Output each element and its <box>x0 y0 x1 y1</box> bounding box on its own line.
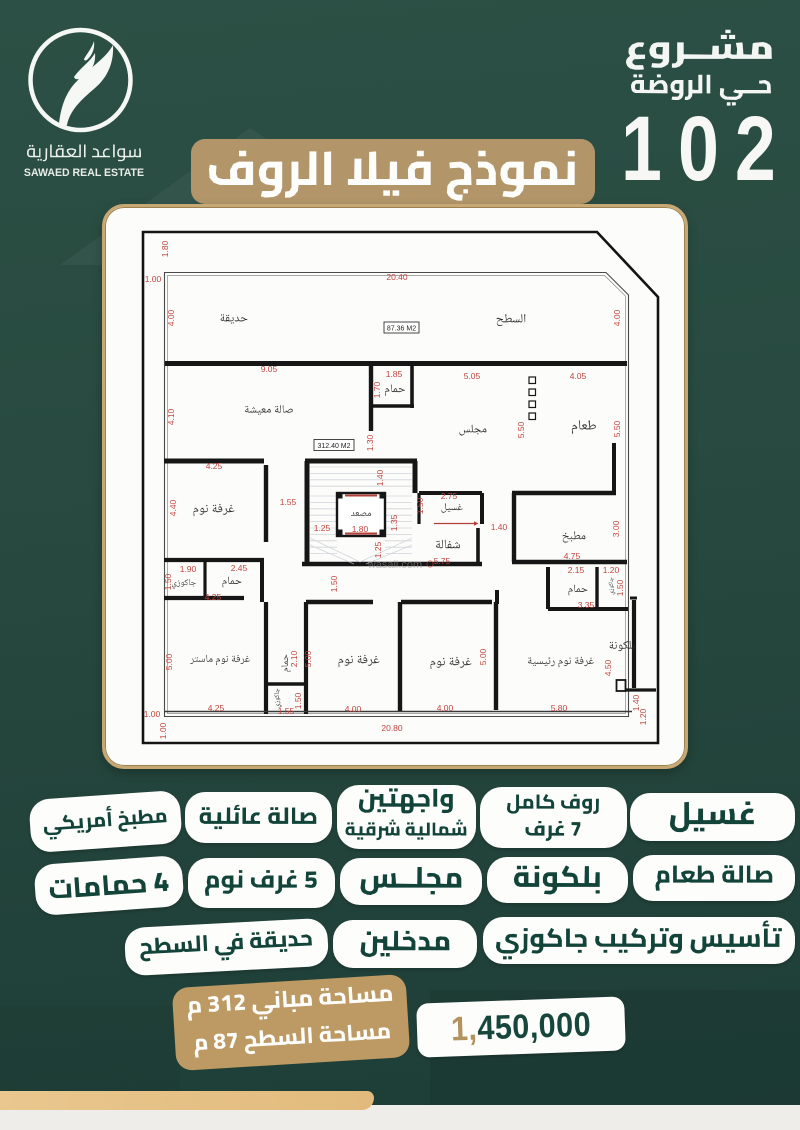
svg-text:4.00: 4.00 <box>166 309 176 326</box>
svg-text:5.50: 5.50 <box>612 420 622 437</box>
svg-text:1.70: 1.70 <box>372 381 382 398</box>
svg-text:4.25: 4.25 <box>208 703 225 713</box>
svg-text:1.35: 1.35 <box>389 514 399 531</box>
svg-text:4.10: 4.10 <box>166 408 176 425</box>
svg-text:1.50: 1.50 <box>615 579 625 596</box>
svg-text:1.55: 1.55 <box>280 497 297 507</box>
svg-text:1.50: 1.50 <box>293 692 303 709</box>
svg-text:5.00: 5.00 <box>164 653 174 670</box>
svg-text:5.50: 5.50 <box>516 421 526 438</box>
svg-text:312.40 M2: 312.40 M2 <box>317 443 350 450</box>
svg-text:1.90: 1.90 <box>180 564 197 574</box>
svg-text:5.00: 5.00 <box>303 650 313 667</box>
svg-text:4.05: 4.05 <box>570 371 587 381</box>
svg-text:3.35: 3.35 <box>578 600 595 610</box>
svg-text:1.20: 1.20 <box>603 565 620 575</box>
svg-text:3.00: 3.00 <box>611 520 621 537</box>
svg-text:1.25: 1.25 <box>314 523 331 533</box>
svg-text:5.80: 5.80 <box>551 703 568 713</box>
svg-text:2.10: 2.10 <box>289 650 299 667</box>
svg-text:4.25: 4.25 <box>206 461 223 471</box>
svg-text:2.15: 2.15 <box>568 565 585 575</box>
svg-text:4.00: 4.00 <box>437 703 454 713</box>
svg-text:4.40: 4.40 <box>168 499 178 516</box>
svg-text:4.50: 4.50 <box>603 659 613 676</box>
svg-text:wasali.com: wasali.com <box>367 559 422 571</box>
svg-text:20.40: 20.40 <box>386 272 408 282</box>
svg-text:5.75: 5.75 <box>434 556 451 566</box>
svg-text:1.85: 1.85 <box>386 369 403 379</box>
svg-text:1.00: 1.00 <box>144 709 161 719</box>
svg-text:9.05: 9.05 <box>261 364 278 374</box>
svg-text:1.80: 1.80 <box>352 524 369 534</box>
svg-text:1.50: 1.50 <box>329 575 339 592</box>
svg-text:1.30: 1.30 <box>365 434 375 451</box>
svg-text:1.55: 1.55 <box>278 706 295 716</box>
svg-text:1.25: 1.25 <box>373 541 383 558</box>
svg-text:4.00: 4.00 <box>345 704 362 714</box>
svg-text:1.00: 1.00 <box>158 722 168 739</box>
svg-text:5.00: 5.00 <box>478 648 488 665</box>
svg-text:1.00: 1.00 <box>145 274 162 284</box>
svg-text:20.80: 20.80 <box>381 723 403 733</box>
svg-text:87.36 M2: 87.36 M2 <box>387 326 416 333</box>
svg-text:4.25: 4.25 <box>205 592 222 602</box>
svg-text:2.75: 2.75 <box>441 491 458 501</box>
svg-text:1.50: 1.50 <box>415 497 425 514</box>
svg-text:1.50: 1.50 <box>163 573 173 590</box>
svg-text:4.75: 4.75 <box>564 551 581 561</box>
svg-text:1.40: 1.40 <box>375 469 385 486</box>
svg-text:1.80: 1.80 <box>160 240 170 257</box>
svg-text:2.45: 2.45 <box>231 563 248 573</box>
svg-text:5.05: 5.05 <box>464 371 481 381</box>
svg-text:4.00: 4.00 <box>612 309 622 326</box>
svg-text:1.40: 1.40 <box>491 522 508 532</box>
svg-text:1.20: 1.20 <box>638 708 648 725</box>
